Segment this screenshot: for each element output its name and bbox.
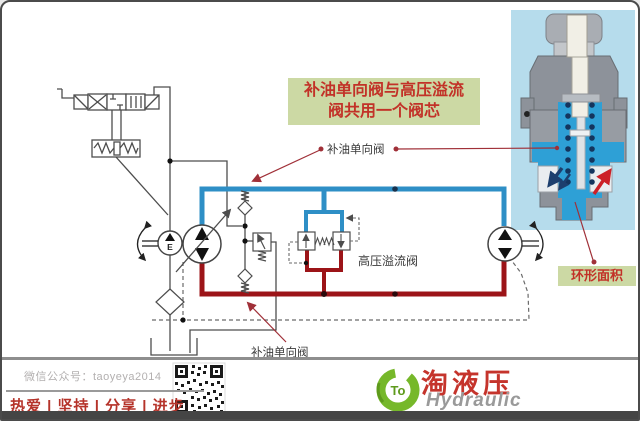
motor-symbol <box>488 227 543 261</box>
logo-badge-text: To <box>391 383 406 398</box>
charge-pump-letter: E <box>167 242 173 252</box>
footer-bottom-bar <box>2 411 638 419</box>
wechat-account-text: 微信公众号：taoyeya2014 <box>24 368 162 384</box>
control-circuit-lines <box>57 87 276 355</box>
logo-swirl-icon: To <box>374 366 422 414</box>
directional-valve-symbol <box>74 94 159 110</box>
annotation-box: 补油单向阀与高压溢流 阀共用一个阀芯 <box>288 78 480 125</box>
footer-separator <box>2 357 638 360</box>
check-valve-top-symbol <box>238 191 252 215</box>
slide-frame: E <box>0 0 640 421</box>
charge-relief-valve-symbol <box>253 233 271 261</box>
brand-english-text: Hydraulic <box>426 390 522 412</box>
hp-relief-module-symbol <box>289 218 359 263</box>
filter-symbol <box>156 289 184 315</box>
label-hp-relief-valve: 高压溢流阀 <box>358 252 418 269</box>
valve-cutaway-illustration <box>511 10 635 230</box>
label-annular-area: 环形面积 <box>558 266 636 286</box>
servo-cylinder-symbol <box>92 140 140 157</box>
motto-divider <box>6 390 204 392</box>
annotation-line2: 阀共用一个阀芯 <box>288 101 480 122</box>
motor-shaft-rotation-icon <box>536 228 543 260</box>
label-check-valve-top: 补油单向阀 <box>327 141 385 157</box>
annotation-line1: 补油单向阀与高压溢流 <box>288 80 480 101</box>
check-valve-bottom-symbol <box>238 269 252 293</box>
pump-shaft-rotation-icon <box>138 228 159 260</box>
